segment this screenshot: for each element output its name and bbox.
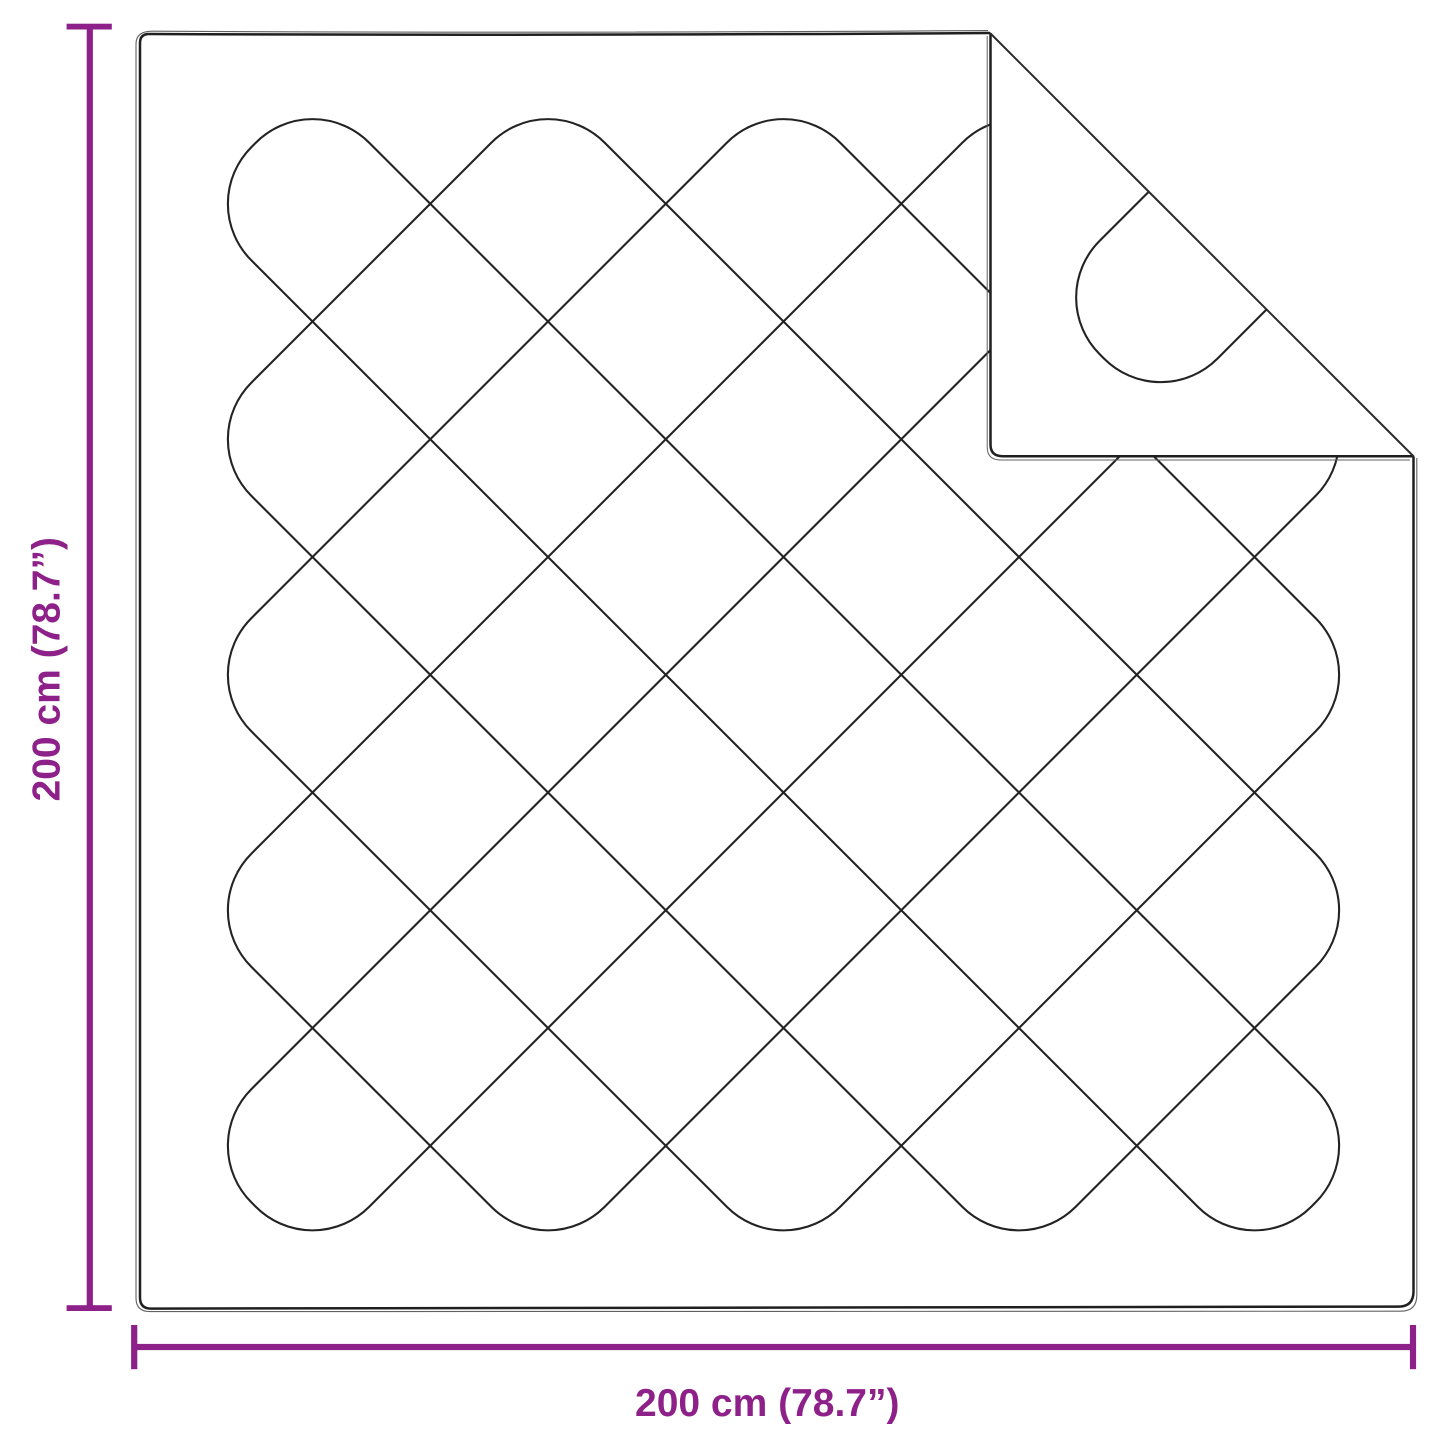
svg-text:200 cm (78.7”): 200 cm (78.7”) [635, 1382, 900, 1425]
svg-text:200 cm (78.7”): 200 cm (78.7”) [25, 537, 68, 802]
